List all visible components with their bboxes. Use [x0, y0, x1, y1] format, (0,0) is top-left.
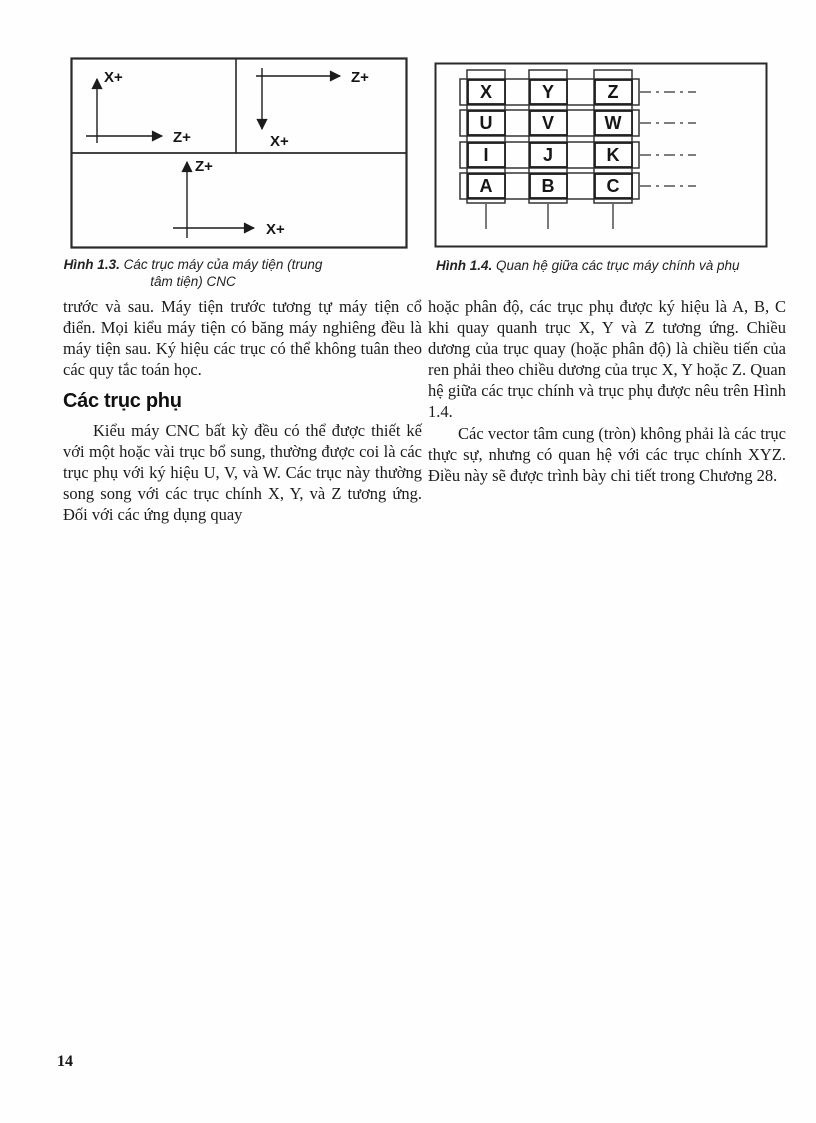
- axis-letter: J: [543, 145, 553, 165]
- axis-letter: V: [542, 113, 554, 133]
- axis-letter: U: [480, 113, 493, 133]
- left-column: trước và sau. Máy tiện trước tương tự má…: [63, 296, 422, 525]
- column-leaders: [486, 204, 613, 229]
- axis-letter: Z: [608, 82, 619, 102]
- axis-label-x-plus: X+: [104, 69, 123, 86]
- paragraph: Các vector tâm cung (tròn) không phải là…: [428, 423, 786, 486]
- axis-letter: X: [480, 82, 492, 102]
- axes-panel-top-left: X+ Z+: [86, 69, 191, 146]
- axis-letter: I: [483, 145, 488, 165]
- axes-relationship-diagram: X Y Z U V W I J K A B C: [434, 61, 768, 249]
- document-page: X+ Z+ Z+ X+ Z+ X+ Hình 1.3. Các trục máy…: [0, 0, 816, 1123]
- axes-panel-bottom: Z+ X+: [173, 158, 285, 238]
- axis-letter: W: [605, 113, 622, 133]
- axis-letter: C: [607, 176, 620, 196]
- axis-cells: X Y Z U V W I J K A B C: [468, 80, 632, 198]
- paragraph: hoặc phân độ, các trục phụ được ký hiệu …: [428, 296, 786, 422]
- caption-label: Hình 1.4.: [436, 258, 492, 273]
- caption-text: Quan hệ giữa các trục máy chính và phụ: [496, 258, 739, 273]
- axis-letter: A: [480, 176, 493, 196]
- axis-letter: Y: [542, 82, 554, 102]
- figure-1-3-caption: Hình 1.3. Các trục máy của máy tiện (tru…: [52, 256, 334, 290]
- figure-1-4: X Y Z U V W I J K A B C: [434, 61, 768, 249]
- axis-label-z-plus: Z+: [351, 69, 369, 86]
- page-number: 14: [57, 1053, 73, 1071]
- axes-panel-top-right: Z+ X+: [256, 68, 369, 150]
- paragraph: trước và sau. Máy tiện trước tương tự má…: [63, 296, 422, 380]
- lathe-axes-diagram: X+ Z+ Z+ X+ Z+ X+: [70, 57, 408, 249]
- right-column: hoặc phân độ, các trục phụ được ký hiệu …: [428, 296, 786, 486]
- section-heading: Các trục phụ: [63, 391, 422, 412]
- axis-label-z-plus: Z+: [195, 158, 213, 175]
- figure-1-3: X+ Z+ Z+ X+ Z+ X+: [70, 57, 408, 249]
- row-leaders: [640, 92, 696, 186]
- axis-letter: B: [542, 176, 555, 196]
- caption-text: Các trục máy của máy tiện (trung tâm tiệ…: [124, 257, 323, 289]
- axis-label-z-plus: Z+: [173, 129, 191, 146]
- caption-label: Hình 1.3.: [64, 257, 120, 272]
- paragraph: Kiểu máy CNC bất kỳ đều có thể được thiế…: [63, 420, 422, 525]
- axis-label-x-plus: X+: [266, 221, 285, 238]
- figure-1-4-caption: Hình 1.4. Quan hệ giữa các trục máy chín…: [436, 257, 788, 274]
- axis-letter: K: [607, 145, 620, 165]
- axis-label-x-plus: X+: [270, 133, 289, 150]
